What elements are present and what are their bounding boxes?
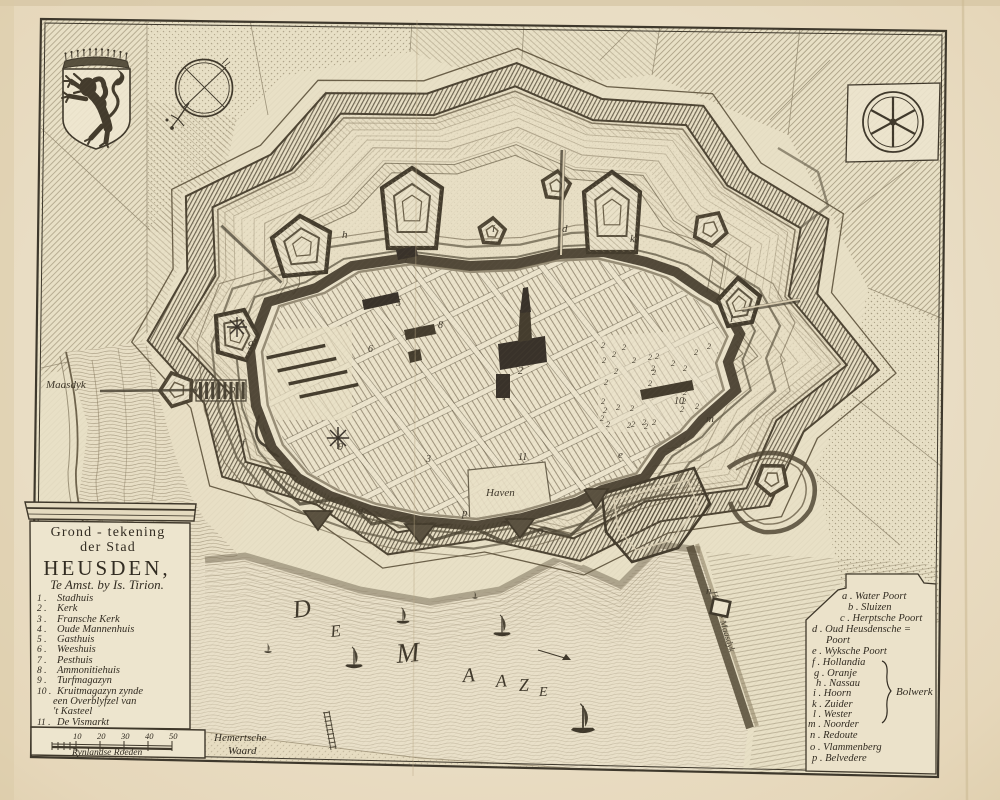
svg-text:10 .: 10 . — [37, 687, 51, 697]
svg-text:Weeshuis: Weeshuis — [57, 644, 96, 655]
svg-text:der Stad: der Stad — [80, 540, 136, 555]
svg-text:50: 50 — [169, 731, 178, 741]
svg-text:6 .: 6 . — [37, 645, 47, 655]
svg-text:i . Hoorn: i . Hoorn — [813, 688, 851, 699]
svg-text:30: 30 — [120, 731, 130, 741]
svg-text:4 .: 4 . — [37, 625, 47, 635]
svg-text:'t Kasteel: 't Kasteel — [53, 706, 92, 717]
svg-text:e . Wyksche Poort: e . Wyksche Poort — [812, 646, 888, 657]
svg-text:a . Water Poort: a . Water Poort — [842, 591, 907, 602]
svg-text:Waard: Waard — [228, 745, 257, 757]
svg-text:11 .: 11 . — [37, 718, 51, 728]
svg-text:2 .: 2 . — [37, 604, 47, 614]
svg-text:Grond - tekening: Grond - tekening — [51, 525, 166, 540]
svg-text:1 .: 1 . — [37, 594, 47, 604]
svg-text:20: 20 — [97, 731, 106, 741]
svg-text:c . Herptsche Poort: c . Herptsche Poort — [840, 613, 923, 624]
svg-text:7 .: 7 . — [37, 656, 47, 666]
svg-text:d . Oud Heusdensche =: d . Oud Heusdensche = — [812, 624, 911, 635]
svg-text:10: 10 — [73, 731, 82, 741]
svg-text:De Vismarkt: De Vismarkt — [56, 717, 110, 728]
svg-text:Turfmagazyn: Turfmagazyn — [57, 675, 112, 686]
svg-text:f . Hollandia: f . Hollandia — [812, 657, 865, 668]
svg-text:40: 40 — [145, 731, 154, 741]
svg-text:n . Redoute: n . Redoute — [810, 730, 858, 741]
svg-text:Hemertsche: Hemertsche — [213, 732, 267, 744]
svg-text:p . Belvedere: p . Belvedere — [811, 753, 867, 764]
svg-text:Poort: Poort — [825, 635, 851, 646]
svg-text:b . Sluizen: b . Sluizen — [848, 602, 891, 613]
svg-text:Rynlandse Roeden: Rynlandse Roeden — [71, 748, 143, 758]
svg-text:3 .: 3 . — [36, 615, 47, 625]
svg-text:m . Noorder: m . Noorder — [808, 719, 860, 730]
svg-text:5 .: 5 . — [37, 635, 47, 645]
svg-text:Kerk: Kerk — [56, 603, 78, 614]
svg-text:Te Amst. by Is. Tirion.: Te Amst. by Is. Tirion. — [50, 577, 164, 592]
svg-text:Bolwerk: Bolwerk — [896, 686, 934, 698]
svg-text:9 .: 9 . — [37, 676, 47, 686]
svg-text:8 .: 8 . — [37, 666, 47, 676]
svg-text:o . Vlammenberg: o . Vlammenberg — [810, 742, 882, 753]
